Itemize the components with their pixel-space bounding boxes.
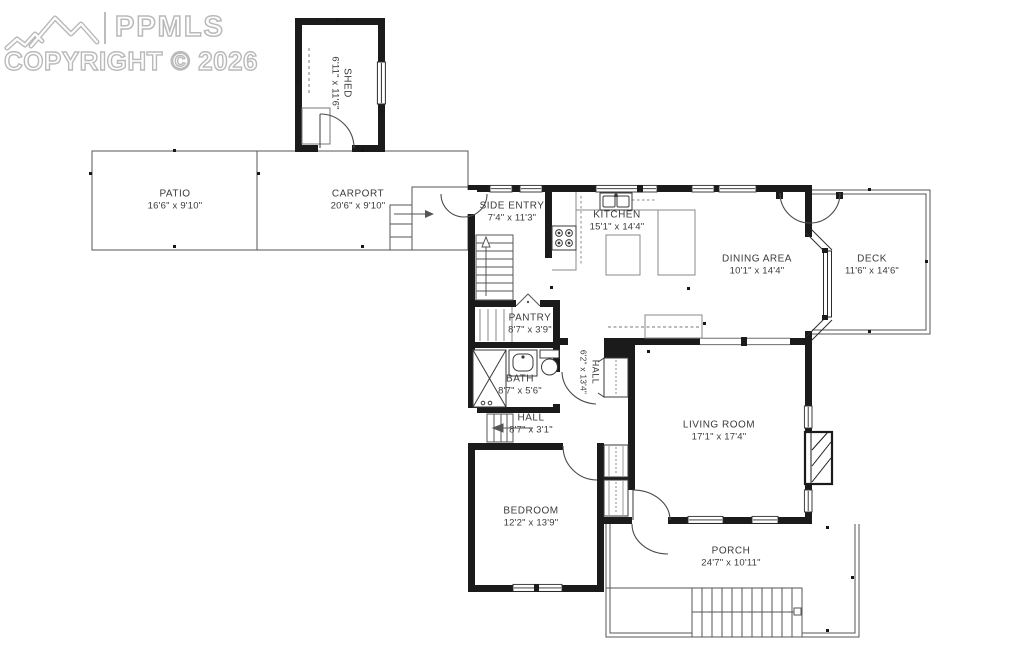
room-label-hall-upper: HALL 6'2" x 13'4" (578, 350, 601, 394)
room-label-porch: PORCH 24'7" x 10'11" (701, 544, 760, 569)
room-label-patio: PATIO 16'6" x 9'10" (148, 187, 203, 212)
room-label-pantry: PANTRY 8'7" x 3'9" (508, 311, 552, 336)
watermark-copyright: COPYRIGHT © 2026 (4, 47, 258, 76)
room-label-shed: SHED 6'11" x 11'6" (328, 56, 353, 109)
side-entry-stairs (476, 235, 513, 300)
room-label-carport: CARPORT 20'6" x 9'10" (331, 187, 386, 212)
carport-steps-arrow (425, 210, 434, 218)
hall-closet (598, 358, 628, 397)
vestibule-closet-top (604, 445, 628, 477)
room-label-hall-lower: HALL 8'7" x 3'1" (509, 411, 553, 436)
cased-opening-living-dining (700, 337, 790, 346)
shed-window (377, 62, 385, 104)
room-label-side-entry: SIDE ENTRY 7'4" x 11'3" (480, 199, 545, 224)
room-label-bath: BATH 8'7" x 5'6" (498, 372, 542, 397)
room-label-deck: DECK 11'6" x 14'6" (845, 252, 899, 277)
stove (552, 226, 576, 250)
bedroom-door-arc (563, 446, 597, 480)
front-door-arc (633, 490, 670, 520)
room-label-living: LIVING ROOM 17'1" x 17'4" (683, 418, 755, 443)
room-label-dining: DINING AREA 10'1" x 14'4" (722, 252, 792, 277)
fireplace (805, 432, 832, 484)
storm-door-arc (632, 524, 668, 554)
vestibule-closet-bottom (604, 480, 628, 516)
porch-stairs (692, 588, 802, 637)
room-label-kitchen: KITCHEN 15'1" x 14'4" (590, 208, 645, 233)
bay-window (806, 229, 832, 341)
shed-interior (302, 48, 330, 144)
watermark-brand: PPMLS (104, 12, 225, 44)
pantry-opening-marker (516, 294, 540, 306)
floor-plan: PPMLS COPYRIGHT © 2026 SHED 6'11" x 11'6… (0, 0, 1024, 665)
room-label-bedroom: BEDROOM 12'2" x 13'9" (503, 504, 558, 529)
toilet (540, 350, 559, 375)
